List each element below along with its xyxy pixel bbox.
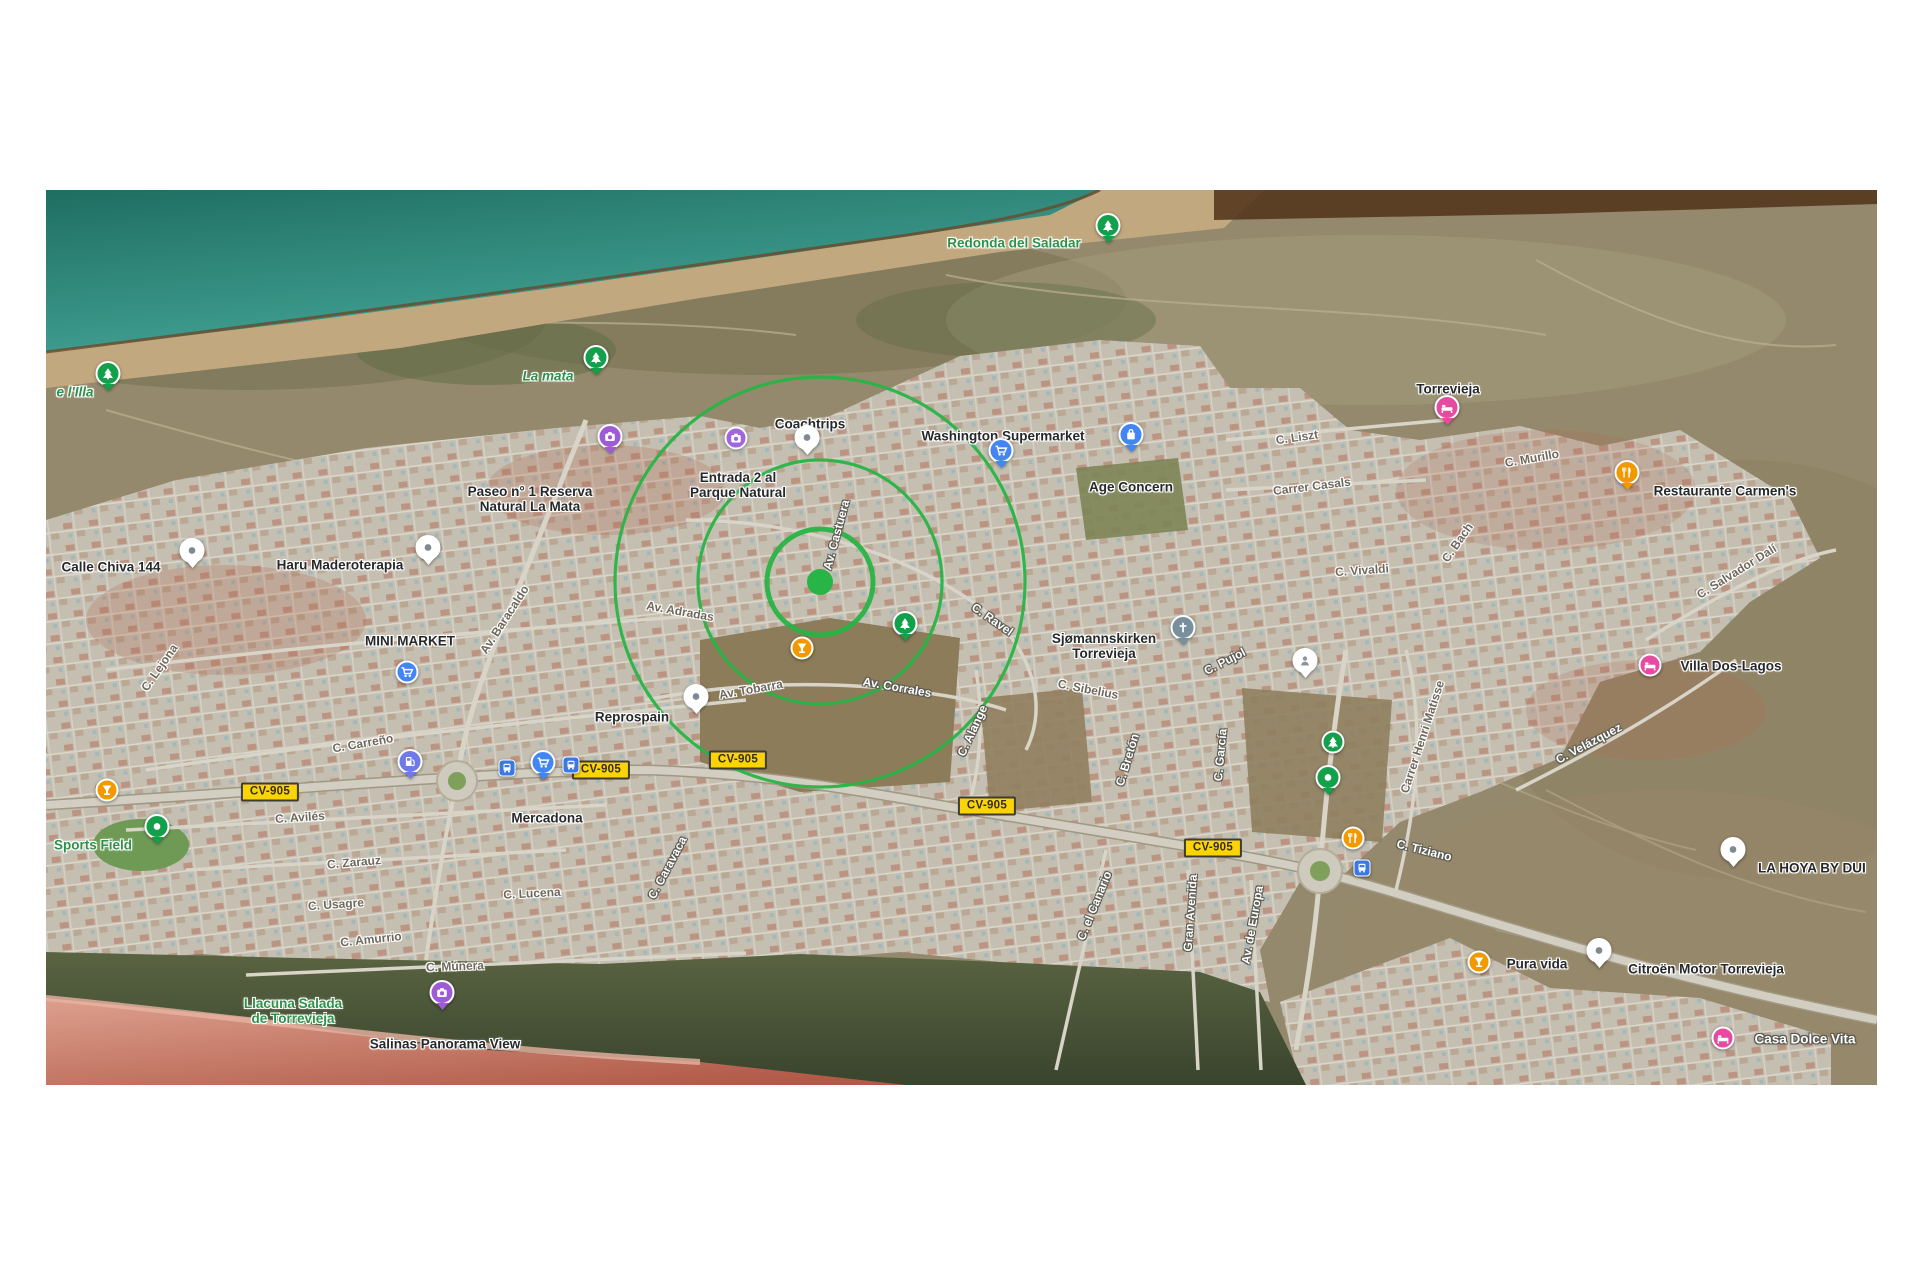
- pin-person-icon[interactable]: [1293, 648, 1318, 678]
- pin-bus-icon[interactable]: [1354, 860, 1371, 877]
- pin-tree-icon[interactable]: [893, 611, 918, 641]
- pin-dot-icon[interactable]: [1587, 938, 1612, 968]
- pin-dot-icon[interactable]: [180, 538, 205, 568]
- pin-cocktail-icon[interactable]: [791, 637, 814, 660]
- pin-bed-icon[interactable]: [1639, 654, 1662, 677]
- pin-cart-icon[interactable]: [531, 750, 556, 780]
- pin-bus-icon[interactable]: [499, 760, 516, 777]
- pin-camera-icon[interactable]: [725, 427, 748, 450]
- pin-tree-icon[interactable]: [584, 345, 609, 375]
- pin-cocktail-icon[interactable]: [1468, 951, 1491, 974]
- pin-bed-icon[interactable]: [1435, 395, 1460, 425]
- pin-bag-icon[interactable]: [1119, 422, 1144, 452]
- pin-bus-icon[interactable]: [563, 757, 580, 774]
- pin-tree-icon[interactable]: [1322, 731, 1345, 754]
- pin-bed-icon[interactable]: [1712, 1027, 1735, 1050]
- pin-cocktail-icon[interactable]: [96, 779, 119, 802]
- pin-dot-icon[interactable]: [416, 535, 441, 565]
- pin-cart-icon[interactable]: [396, 661, 419, 684]
- pin-camera-icon[interactable]: [430, 980, 455, 1010]
- pin-cart-icon[interactable]: [989, 438, 1014, 468]
- pin-dot-icon[interactable]: [795, 425, 820, 455]
- satellite-map[interactable]: Redonda del SaladarLa matae l'IllaCoacht…: [46, 190, 1877, 1085]
- pin-dot-green-icon[interactable]: [145, 814, 170, 844]
- pins-layer: [46, 190, 1877, 1085]
- pin-tree-icon[interactable]: [96, 361, 121, 391]
- pin-dot-icon[interactable]: [1721, 837, 1746, 867]
- pin-dot-green-icon[interactable]: [1316, 765, 1341, 795]
- pin-dot-icon[interactable]: [684, 684, 709, 714]
- pin-fuel-icon[interactable]: [398, 749, 423, 779]
- pin-tree-icon[interactable]: [1096, 213, 1121, 243]
- pin-restaurant-icon[interactable]: [1342, 827, 1365, 850]
- pin-restaurant-icon[interactable]: [1615, 460, 1640, 490]
- pin-camera-icon[interactable]: [598, 424, 623, 454]
- pin-church-icon[interactable]: [1171, 615, 1196, 645]
